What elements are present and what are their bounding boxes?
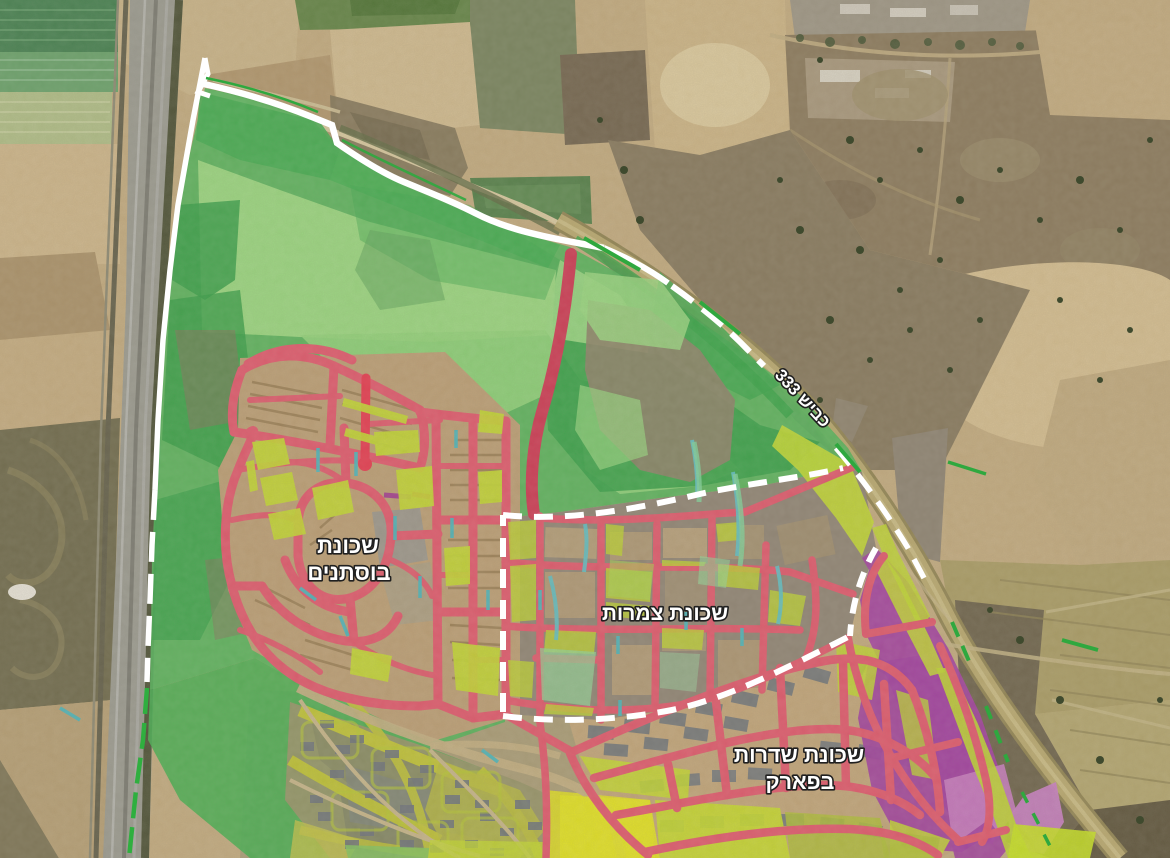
svg-text:שכונת שדרות: שכונת שדרות <box>734 743 865 767</box>
svg-text:בפארק: בפארק <box>766 770 835 794</box>
svg-text:שכונת צמרות: שכונת צמרות <box>602 602 728 625</box>
svg-text:בוסתנים: בוסתנים <box>307 560 390 585</box>
svg-text:שכונת: שכונת <box>317 533 379 558</box>
